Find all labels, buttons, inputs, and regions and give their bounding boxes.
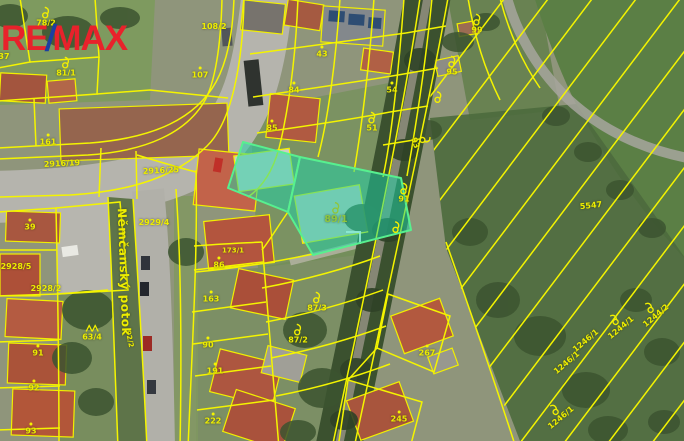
remax-logo: RE/MAX	[1, 21, 127, 56]
property-map-viewport[interactable]: 78/281/1371612916/192916/252929/4392928/…	[0, 0, 684, 441]
logo-max: MAX	[52, 19, 127, 58]
aerial-basemap	[0, 0, 684, 441]
logo-re: RE	[1, 19, 48, 58]
